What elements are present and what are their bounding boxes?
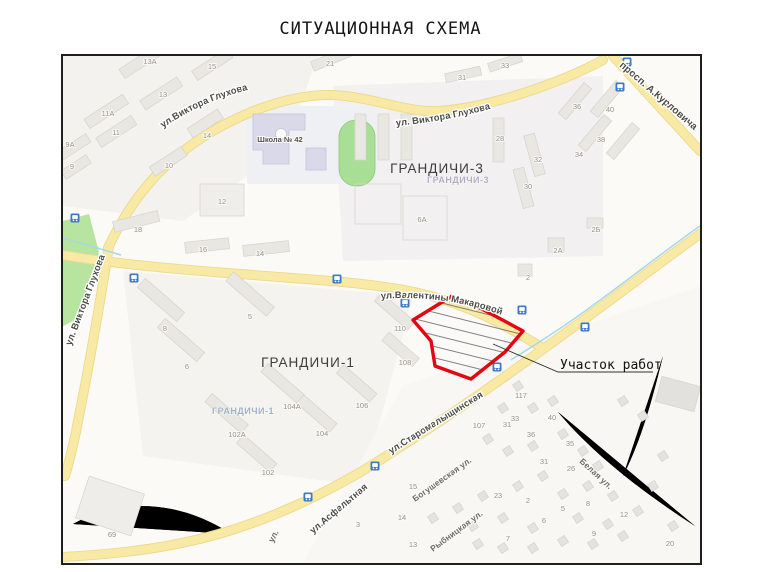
page-title: СИТУАЦИОННАЯ СХЕМА	[0, 19, 761, 39]
house-number: 36	[573, 102, 581, 111]
district-label: ГРАНДИЧИ-3	[390, 161, 484, 176]
house-number: 2	[526, 273, 530, 282]
house-number: 15	[409, 482, 417, 491]
house-number: 30	[524, 182, 532, 191]
house-number: 7	[506, 534, 510, 543]
house-number: 13А	[143, 57, 156, 66]
house-number: 33	[511, 414, 519, 423]
district-label: ГРАНДИЧИ-1	[261, 355, 355, 370]
house-number: 13	[409, 540, 417, 549]
house-number: 2Б	[591, 225, 600, 234]
house-number: 18	[134, 225, 142, 234]
house-number: 10	[165, 161, 173, 170]
house-number: 6А	[417, 215, 426, 224]
house-number: 32	[534, 155, 542, 164]
house-number: 5	[561, 504, 565, 513]
bus-stop-icon	[333, 275, 342, 284]
house-number: 11А	[102, 109, 115, 118]
house-number: 12	[620, 510, 628, 519]
house-number: 31	[540, 457, 548, 466]
house-number: 104А	[283, 402, 301, 411]
bus-stop-icon	[304, 493, 313, 502]
house-number: 28	[496, 134, 504, 143]
house-number: 108	[399, 358, 412, 367]
house-number: 31	[458, 73, 466, 82]
bus-stop-icon	[71, 214, 80, 223]
district-sublabel: ГРАНДИЧИ-1	[212, 406, 274, 416]
bus-stop-icon	[616, 83, 625, 92]
house-number: 11	[112, 128, 120, 137]
house-number: 9	[592, 529, 596, 538]
house-number: 14	[256, 249, 264, 258]
house-number: 3	[356, 520, 360, 529]
house-number: 2А	[553, 246, 562, 255]
house-number: 14	[398, 513, 406, 522]
district-sublabel: ГРАНДИЧИ-3	[427, 175, 489, 185]
house-number: 9	[70, 162, 74, 171]
house-number: 36	[527, 430, 535, 439]
house-number: 2	[526, 496, 530, 505]
house-number: 102А	[228, 430, 246, 439]
house-number: 33	[501, 61, 509, 70]
house-number: 8	[163, 324, 167, 333]
house-number: 14	[203, 131, 211, 140]
house-number: 23	[494, 491, 502, 500]
house-number: 107	[473, 421, 486, 430]
house-number: 102	[262, 468, 275, 477]
work-area-label: Участок работ	[560, 358, 662, 373]
house-number: 40	[606, 105, 614, 114]
house-number: 106	[356, 401, 369, 410]
house-number: 38	[597, 135, 605, 144]
house-number: 104	[316, 429, 329, 438]
house-number: 21	[326, 59, 334, 68]
bus-stop-icon	[493, 363, 502, 372]
situational-scheme-page: СИТУАЦИОННАЯ СХЕМА	[0, 0, 761, 572]
bus-stop-icon	[581, 323, 590, 332]
bus-stop-icon	[518, 306, 527, 315]
bus-stop-icon	[130, 274, 139, 283]
school-label: Школа № 42	[257, 135, 302, 144]
house-number: 69	[108, 530, 116, 539]
house-number: 6	[542, 516, 546, 525]
house-number: 20	[666, 539, 674, 548]
map-frame: ул.Виктора Глухова ул. Виктора Глухова п…	[61, 54, 702, 565]
house-number: 34	[575, 150, 583, 159]
house-number: 110	[394, 324, 406, 333]
house-number: 8	[586, 499, 590, 508]
house-number: 16	[199, 245, 207, 254]
situational-map: ул.Виктора Глухова ул. Виктора Глухова п…	[63, 56, 700, 563]
house-number: 117	[515, 391, 527, 400]
house-number: 9А	[65, 140, 74, 149]
house-number: 15	[208, 62, 216, 71]
house-number: 35	[566, 439, 574, 448]
house-number: 12	[218, 197, 226, 206]
house-number: 5	[248, 312, 252, 321]
bus-stop-icon	[371, 462, 380, 471]
house-number: 40	[548, 413, 556, 422]
house-number: 6	[185, 362, 189, 371]
house-number: 26	[567, 464, 575, 473]
house-number: 13	[159, 90, 167, 99]
